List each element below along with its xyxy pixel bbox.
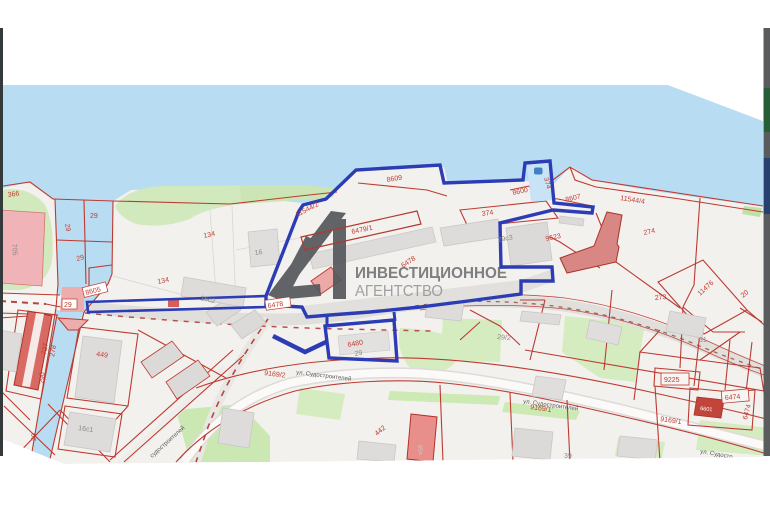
svg-text:29: 29 [354,350,363,358]
svg-text:29: 29 [31,433,38,441]
svg-text:6601: 6601 [700,406,713,413]
svg-text:290: 290 [39,372,46,384]
svg-text:АГЕНТСТВО: АГЕНТСТВО [355,283,443,300]
svg-text:6474: 6474 [725,394,741,402]
svg-text:29: 29 [63,223,71,232]
svg-text:9225: 9225 [664,377,680,384]
svg-text:б5э: б5э [416,445,423,455]
svg-text:273: 273 [655,294,667,302]
svg-text:705: 705 [10,244,18,256]
svg-text:ИНВЕСТИЦИОННОЕ: ИНВЕСТИЦИОННОЕ [355,265,507,282]
svg-text:29: 29 [90,213,98,220]
svg-text:39: 39 [564,453,572,460]
svg-text:31: 31 [699,337,707,344]
svg-text:16: 16 [254,249,263,257]
svg-text:29/2: 29/2 [497,334,511,342]
svg-text:29: 29 [64,302,72,309]
